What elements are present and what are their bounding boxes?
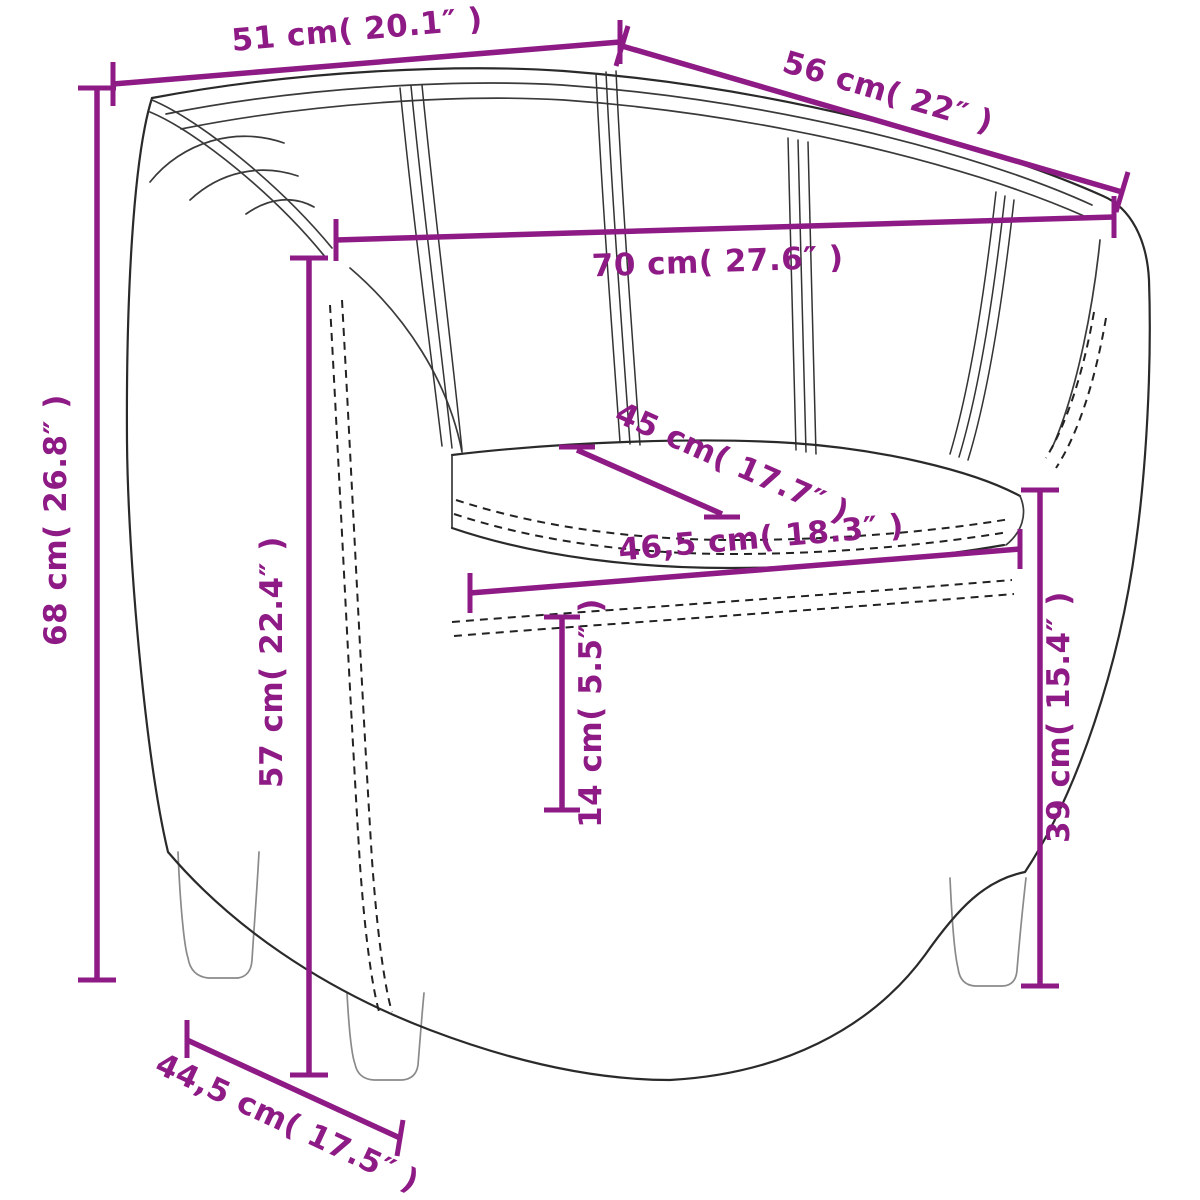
dim-overall-height: 68 cm( 26.8″ ) bbox=[38, 88, 116, 980]
right-arm-seam-stitch-2 bbox=[1056, 318, 1106, 468]
left-arm-seam-stitch-2 bbox=[330, 305, 380, 1015]
stitch-channel-1 bbox=[400, 85, 462, 450]
dim-seat-depth: 45 cm( 17.7″ ) bbox=[559, 395, 854, 530]
dim-label-back-height: 57 cm( 22.4″ ) bbox=[254, 536, 290, 788]
dim-label-seat-depth: 45 cm( 17.7″ ) bbox=[610, 395, 855, 530]
dim-top-width: 51 cm( 20.1″ ) bbox=[113, 1, 620, 106]
left-arm-roll-edge-2 bbox=[150, 112, 326, 258]
dim-cushion-height: 14 cm( 5.5″ ) bbox=[544, 598, 609, 828]
dimension-diagram: 51 cm( 20.1″ ) 56 cm( 22″ ) 70 cm( 27.6″… bbox=[0, 0, 1200, 1200]
dim-label-top-width: 51 cm( 20.1″ ) bbox=[230, 1, 484, 59]
dim-label-overall-height: 68 cm( 26.8″ ) bbox=[38, 394, 74, 646]
dim-label-base-depth: 44,5 cm( 17.5″ ) bbox=[150, 1046, 425, 1200]
dim-base-depth: 44,5 cm( 17.5″ ) bbox=[150, 1020, 425, 1200]
right-arm-seam-stitch-1 bbox=[1046, 312, 1094, 458]
right-arm-inner-edge bbox=[1052, 240, 1100, 448]
leg-front-center bbox=[347, 993, 424, 1080]
dim-label-seat-height: 39 cm( 15.4″ ) bbox=[1041, 591, 1077, 843]
stitch-channel-4 bbox=[950, 192, 1014, 460]
dim-back-height: 57 cm( 22.4″ ) bbox=[254, 258, 328, 1075]
diagram-svg: 51 cm( 20.1″ ) 56 cm( 22″ ) 70 cm( 27.6″… bbox=[0, 0, 1200, 1200]
leg-front-right bbox=[950, 878, 1026, 986]
stitch-channel-3 bbox=[788, 138, 816, 454]
dim-top-depth: 56 cm( 22″ ) bbox=[616, 26, 1128, 212]
leg-back-left bbox=[178, 852, 259, 978]
dim-inner-width: 70 cm( 27.6″ ) bbox=[336, 196, 1114, 284]
dim-label-cushion-height: 14 cm( 5.5″ ) bbox=[573, 598, 609, 828]
left-arm-seam-stitch-1 bbox=[342, 300, 392, 1012]
dim-seat-height: 39 cm( 15.4″ ) bbox=[1021, 490, 1077, 986]
dim-label-inner-width: 70 cm( 27.6″ ) bbox=[591, 240, 844, 285]
left-arm-crease-1 bbox=[150, 136, 284, 182]
